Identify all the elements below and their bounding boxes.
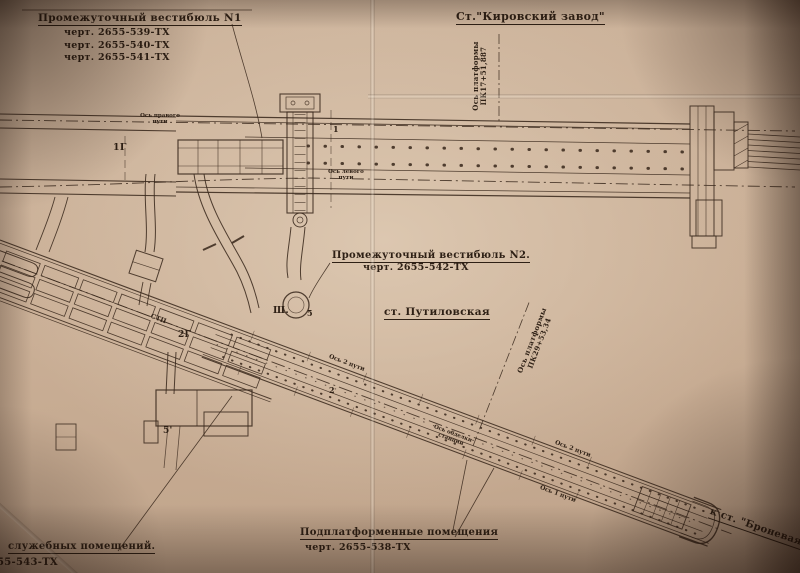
label-service-rooms-drawing: 55-543-ТХ	[0, 557, 58, 569]
plan-linework	[0, 0, 800, 573]
label-axis-right-track: Ось правого пути	[134, 114, 186, 126]
label-station-kirovsky: Ст."Кировский завод"	[456, 11, 605, 24]
section-mark-1g: 1Г	[113, 143, 127, 154]
label-leader-lines	[452, 460, 494, 537]
putilovskaya-station-band	[0, 231, 739, 569]
label-underplatform-title: Подплатформенные помещения	[300, 527, 498, 539]
label-vestibule-n2-title: Промежуточный вестибюль N2.	[332, 250, 530, 262]
kirovsky-end-structure	[690, 106, 800, 248]
label-axis-left-track: Ось левого пути	[322, 170, 370, 182]
drawing-number: черт. 2655-541-ТХ	[64, 52, 170, 65]
section-mark-2: 2	[329, 386, 335, 395]
label-kirovsky-platform-axis: Ось платформы ПК17+51,887	[472, 30, 488, 122]
label-underplatform-drawing: черт. 2655-538-ТХ	[305, 543, 411, 554]
vestibule-n2-structure	[283, 227, 330, 318]
label-vestibule-n1-drawings: черт. 2655-539-ТХ черт. 2655-540-ТХ черт…	[64, 27, 170, 65]
drawing-number: черт. 2655-540-ТХ	[64, 40, 170, 53]
label-station-putilovskaya: ст. Путиловская	[384, 306, 490, 318]
passage-tubes	[36, 174, 259, 313]
section-mark-5p: 5'	[163, 426, 173, 436]
label-vestibule-n2-drawing: черт. 2655-542-ТХ	[363, 263, 469, 274]
label-service-rooms-title: служебных помещений.	[8, 541, 155, 553]
section-mark-1: 1	[333, 125, 339, 134]
service-rooms-structure	[56, 352, 252, 551]
label-vestibule-n1-title: Промежуточный вестибюль N1	[38, 12, 242, 24]
section-mark-2g: 2Г	[178, 330, 191, 340]
drawing-number: черт. 2655-539-ТХ	[64, 27, 170, 40]
section-mark-sh: Ш.	[273, 306, 289, 317]
section-mark-5: 5	[307, 309, 313, 318]
photographed-plan-drawing: Промежуточный вестибюль N1 черт. 2655-53…	[0, 0, 800, 573]
